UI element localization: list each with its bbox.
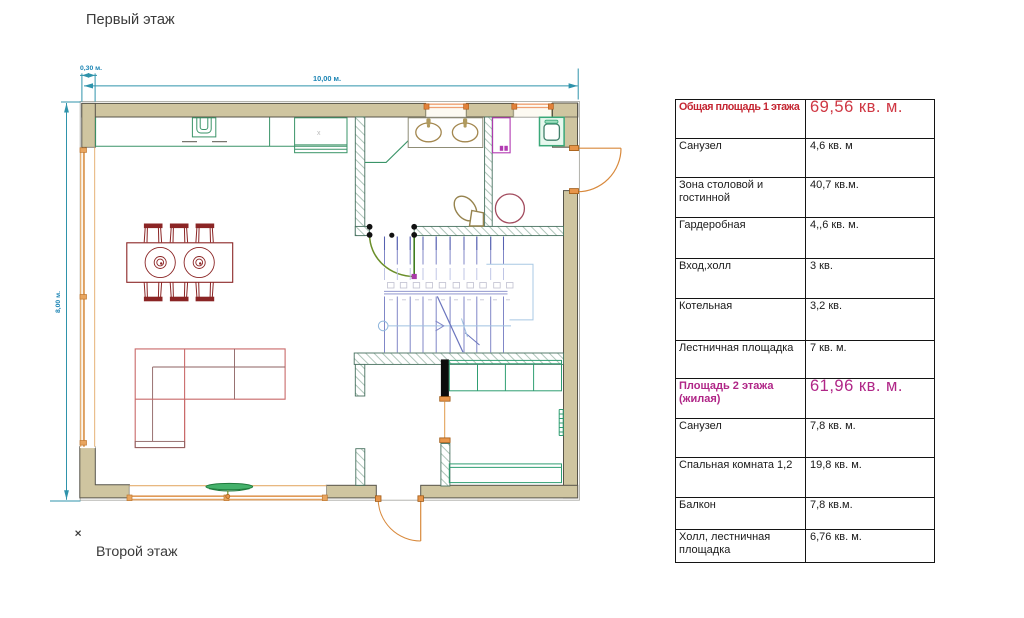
svg-text:Второй этаж: Второй этаж bbox=[96, 544, 178, 560]
svg-text:10,00 м.: 10,00 м. bbox=[313, 74, 341, 83]
svg-text:0,30 м.: 0,30 м. bbox=[80, 65, 102, 72]
svg-text:Первый этаж: Первый этаж bbox=[86, 12, 175, 28]
svg-text:8,00 м.: 8,00 м. bbox=[55, 291, 62, 313]
svg-text:x: x bbox=[317, 130, 321, 137]
